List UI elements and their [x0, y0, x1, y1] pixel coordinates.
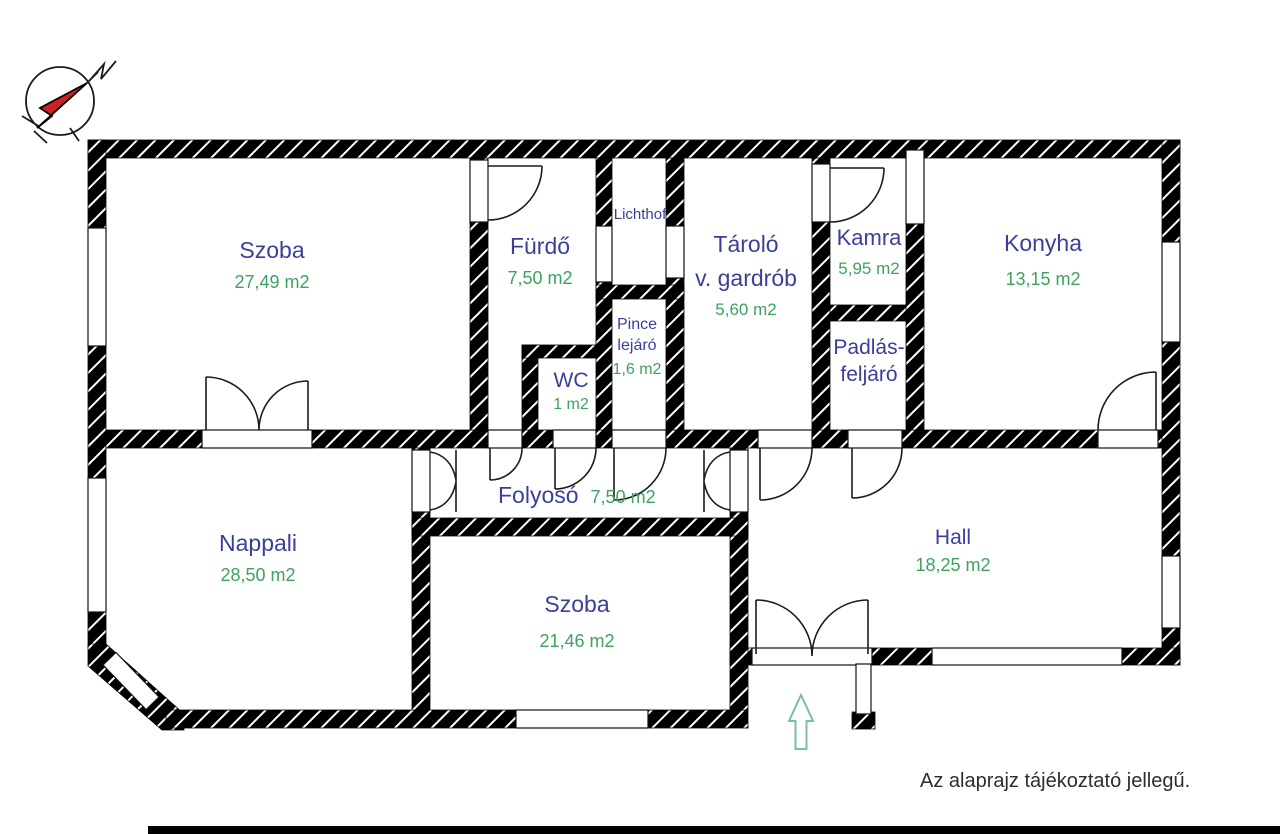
room-label-pince-lejaro: Pince lejáró 1,6 m2 — [613, 314, 662, 381]
floorplan-canvas: Szoba 27,49 m2 Fürdő 7,50 m2 Lichthof Pi… — [0, 0, 1280, 834]
room-label-nappali: Nappali 28,50 m2 — [219, 530, 297, 586]
plan-note: Az alaprajz tájékoztató jellegű. — [920, 770, 1190, 793]
room-area: 1,6 m2 — [613, 359, 662, 381]
room-label-furdo: Fürdő 7,50 m2 — [507, 233, 572, 289]
room-label-padlas-feljaro: Padlás- feljáró — [833, 334, 904, 388]
room-name-line1: Padlás- — [833, 334, 904, 361]
room-name: Fürdő — [507, 233, 572, 260]
room-label-tarolo: Tároló v. gardrób 5,60 m2 — [695, 231, 797, 321]
room-name: Nappali — [219, 530, 297, 557]
room-label-konyha: Konyha 13,15 m2 — [1004, 230, 1082, 290]
room-area: 7,50 m2 — [507, 267, 572, 289]
entrance-arrow-icon — [789, 695, 813, 749]
room-name: Lichthof — [614, 206, 667, 224]
porch-wall-stub — [856, 664, 871, 714]
room-name: Hall — [915, 526, 990, 550]
room-name-line2: lejáró — [613, 335, 662, 356]
room-area: 27,49 m2 — [234, 271, 309, 293]
room-name: Kamra — [837, 224, 902, 251]
room-name: Szoba — [539, 591, 614, 618]
room-name-line2: feljáró — [833, 361, 904, 388]
room-area: 5,60 m2 — [695, 299, 797, 321]
room-area: 28,50 m2 — [219, 564, 297, 586]
room-name: Konyha — [1004, 230, 1082, 257]
floorplan-drawing — [0, 0, 1280, 834]
room-name: Szoba — [234, 237, 309, 264]
room-area: 7,50 m2 — [591, 486, 656, 508]
room-area: 5,95 m2 — [837, 258, 902, 280]
room-name-line1: Pince — [613, 314, 662, 335]
room-name: WC — [553, 369, 589, 393]
room-name-line2: v. gardrób — [695, 265, 797, 292]
room-name-line1: Tároló — [695, 231, 797, 258]
room-label-lichthof: Lichthof — [614, 206, 667, 224]
room-label-hall: Hall 18,25 m2 — [915, 526, 990, 576]
compass-north-icon — [22, 61, 116, 143]
room-label-szoba-1: Szoba 27,49 m2 — [234, 237, 309, 293]
room-label-folyoso: Folyosó 7,50 m2 — [498, 482, 656, 509]
room-area: 1 m2 — [553, 394, 589, 416]
room-area: 21,46 m2 — [539, 630, 614, 652]
room-area: 18,25 m2 — [915, 554, 990, 576]
room-label-wc: WC 1 m2 — [553, 369, 589, 416]
room-name: Folyosó — [498, 482, 579, 509]
room-label-kamra: Kamra 5,95 m2 — [837, 224, 902, 280]
room-area: 13,15 m2 — [1004, 268, 1082, 290]
room-label-szoba-2: Szoba 21,46 m2 — [539, 591, 614, 652]
bottom-edge-bar — [148, 826, 1280, 834]
